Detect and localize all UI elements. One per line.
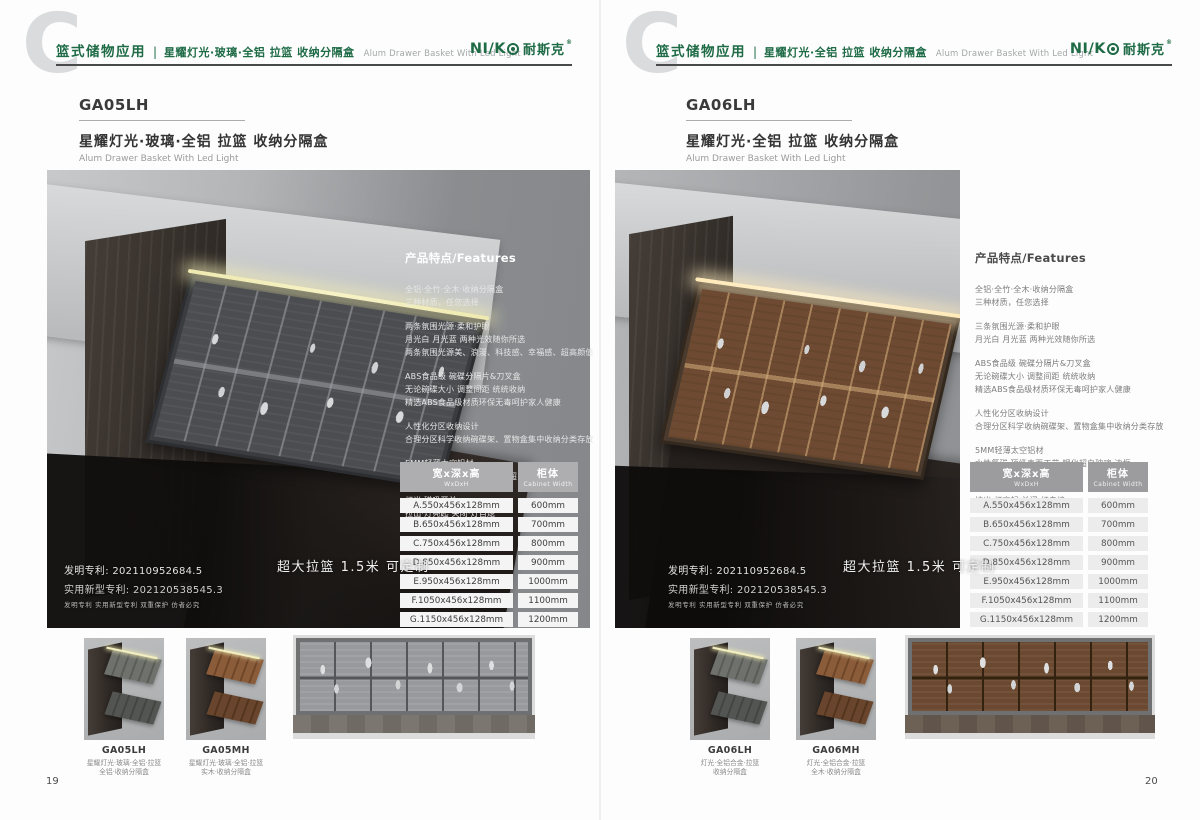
spec-row: F.1050x456x128mm1100mm: [400, 593, 578, 608]
spec-row: C.750x456x128mm800mm: [970, 536, 1148, 551]
product-name-cn: 星耀灯光·全铝 拉篮 收纳分隔盒: [686, 131, 899, 151]
header-divider: |: [753, 45, 757, 59]
spec-row: F.1050x456x128mm1100mm: [970, 593, 1148, 608]
logo-o-icon: [1107, 43, 1119, 55]
header-subtitle-cn: 星耀灯光·玻璃·全铝 拉篮 收纳分隔盒: [164, 44, 355, 60]
patent-info: 发明专利: 202110952684.5 实用新型专利: 20212053854…: [64, 562, 223, 609]
spec-header-size: 宽x深x高 WxDxH: [400, 462, 513, 492]
logo-latin: NI/K: [1070, 41, 1106, 57]
cutlery-items: [668, 289, 951, 472]
spec-header-cabinet: 柜体 Cabinet Width: [1088, 462, 1148, 492]
product-model: GA06LH: [686, 96, 899, 114]
custom-size-badge: 超大拉篮 1.5米 可定制: [843, 556, 995, 575]
spec-row: E.950x456x128mm1000mm: [970, 574, 1148, 589]
feature-group: ABS食品级 碗碟分隔片&刀叉盒 无论碗碟大小 调整间距 统统收纳 精选ABS食…: [975, 357, 1180, 396]
feature-group: 人性化分区收纳设计 合理分区科学收纳碗碟架、置物盒集中收纳分类存放: [975, 407, 1180, 433]
drawer-topview-photo-gray: [293, 635, 535, 739]
header-divider: |: [153, 45, 157, 59]
feature-group: 全铝·全竹·全木·收纳分隔盒 三种材质，任您选择: [975, 283, 1180, 309]
tray-cutlery: [912, 642, 1148, 711]
page-number: 19: [46, 776, 59, 787]
spec-row: G.1150x456x128mm1200mm: [970, 612, 1148, 627]
patent-notice: 发明专利 实用新型专利 双重保护 仿者必究: [668, 599, 827, 609]
header-rule: [56, 64, 572, 66]
feature-group: 两条氛围光源·柔和护眼 月光白 月光蓝 两种光效随你所选 两条氛围光源美、浪漫、…: [405, 320, 597, 359]
patent-notice: 发明专利 实用新型专利 双重保护 仿者必究: [64, 599, 223, 609]
tray-frame: [296, 638, 532, 715]
features-heading: 产品特点/Features: [405, 250, 597, 266]
spec-table: 宽x深x高 WxDxH 柜体 Cabinet Width A.550x456x1…: [400, 462, 578, 631]
product-model: GA05LH: [79, 96, 328, 114]
spec-header-size: 宽x深x高 WxDxH: [970, 462, 1083, 492]
logo-registered-mark: ®: [1166, 39, 1172, 46]
invention-patent: 发明专利: 202110952684.5: [668, 562, 827, 577]
page-19: C 篮式储物应用 | 星耀灯光·玻璃·全铝 拉篮 收纳分隔盒 Alum Draw…: [0, 0, 600, 820]
tray-frame: [908, 638, 1152, 715]
thumbnail-caption: GA05MH 星耀灯光·玻璃·全铝·拉篮 实木·收纳分隔盒: [166, 745, 286, 777]
invention-patent: 发明专利: 202110952684.5: [64, 562, 223, 577]
spec-row: G.1150x456x128mm1200mm: [400, 612, 578, 627]
tray-front-ledge: [905, 715, 1155, 733]
spec-row: C.750x456x128mm800mm: [400, 536, 578, 551]
logo-chinese: 耐斯克: [1123, 39, 1165, 58]
spec-row: A.550x456x128mm600mm: [970, 498, 1148, 513]
spec-row: D.850x456x128mm900mm: [970, 555, 1148, 570]
title-underline: [79, 120, 245, 121]
feature-group: ABS食品级 碗碟分隔片&刀叉盒 无论碗碟大小 调整间距 统统收纳 精选ABS食…: [405, 370, 597, 409]
header-category: 篮式储物应用: [656, 40, 746, 60]
tray-front-ledge: [293, 715, 535, 733]
page-header: 篮式储物应用 | 星耀灯光·全铝 拉篮 收纳分隔盒 Alum Drawer Ba…: [656, 40, 1093, 60]
catalog-spread: C 篮式储物应用 | 星耀灯光·玻璃·全铝 拉篮 收纳分隔盒 Alum Draw…: [0, 0, 1200, 820]
thumbnail-caption: GA06LH 灯光·全铝合金·拉篮 收纳分隔盒: [670, 745, 790, 777]
product-name-cn: 星耀灯光·玻璃·全铝 拉篮 收纳分隔盒: [79, 131, 328, 151]
spec-header-cabinet: 柜体 Cabinet Width: [518, 462, 578, 492]
page-header: 篮式储物应用 | 星耀灯光·玻璃·全铝 拉篮 收纳分隔盒 Alum Drawer…: [56, 40, 521, 60]
title-underline: [686, 120, 852, 121]
header-category: 篮式储物应用: [56, 40, 146, 60]
page-fold: [599, 0, 601, 820]
feature-group: 人性化分区收纳设计 合理分区科学收纳碗碟架、置物盒集中收纳分类存放: [405, 420, 597, 446]
thumbnail-ga06lh: [690, 638, 770, 740]
nisko-logo: NI/K 耐斯克 ®: [1070, 39, 1172, 58]
spec-row: B.650x456x128mm700mm: [970, 517, 1148, 532]
patent-info: 发明专利: 202110952684.5 实用新型专利: 20212053854…: [668, 562, 827, 609]
page-number: 20: [1145, 776, 1158, 787]
spec-row: A.550x456x128mm600mm: [400, 498, 578, 513]
logo-latin: NI/K: [470, 41, 506, 57]
utility-patent: 实用新型专利: 202120538545.3: [64, 581, 223, 596]
logo-o-icon: [507, 43, 519, 55]
thumbnail-caption: GA06MH 灯光·全铝合金·拉篮 全木·收纳分隔盒: [776, 745, 896, 777]
product-title-block: GA05LH 星耀灯光·玻璃·全铝 拉篮 收纳分隔盒 Alum Drawer B…: [79, 96, 328, 164]
utility-patent: 实用新型专利: 202120538545.3: [668, 581, 827, 596]
nisko-logo: NI/K 耐斯克 ®: [470, 39, 572, 58]
spec-row: E.950x456x128mm1000mm: [400, 574, 578, 589]
logo-chinese: 耐斯克: [523, 39, 565, 58]
header-rule: [656, 64, 1172, 66]
tray-cutlery: [300, 642, 528, 711]
feature-group: 三条氛围光源·柔和护眼 月光白 月光蓝 两种光效随你所选: [975, 320, 1180, 346]
logo-registered-mark: ®: [566, 39, 572, 46]
feature-group: 全铝·全竹·全木·收纳分隔盒 三种材质，任您选择: [405, 283, 597, 309]
spec-table-header: 宽x深x高 WxDxH 柜体 Cabinet Width: [400, 462, 578, 492]
features-heading: 产品特点/Features: [975, 250, 1180, 266]
product-name-en: Alum Drawer Basket With Led Light: [79, 154, 328, 164]
thumbnail-ga05mh: [186, 638, 266, 740]
product-name-en: Alum Drawer Basket With Led Light: [686, 154, 899, 164]
product-title-block: GA06LH 星耀灯光·全铝 拉篮 收纳分隔盒 Alum Drawer Bask…: [686, 96, 899, 164]
custom-size-badge: 超大拉篮 1.5米 可定制: [277, 556, 429, 575]
spec-table: 宽x深x高 WxDxH 柜体 Cabinet Width A.550x456x1…: [970, 462, 1148, 631]
spec-table-header: 宽x深x高 WxDxH 柜体 Cabinet Width: [970, 462, 1148, 492]
page-20: C 篮式储物应用 | 星耀灯光·全铝 拉篮 收纳分隔盒 Alum Drawer …: [600, 0, 1200, 820]
thumbnail-ga06mh: [796, 638, 876, 740]
header-subtitle-cn: 星耀灯光·全铝 拉篮 收纳分隔盒: [764, 44, 927, 60]
thumbnail-ga05lh: [84, 638, 164, 740]
drawer-topview-photo-wood: [905, 635, 1155, 739]
spec-row: B.650x456x128mm700mm: [400, 517, 578, 532]
